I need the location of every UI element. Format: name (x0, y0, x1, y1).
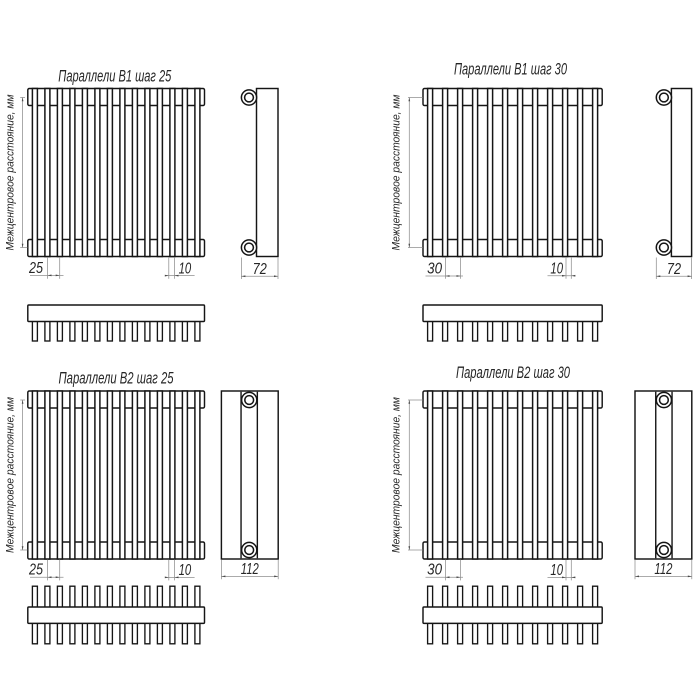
svg-text:Межцентровое расстояние, мм: Межцентровое расстояние, мм (391, 94, 403, 251)
svg-text:72: 72 (667, 261, 681, 278)
svg-text:10: 10 (550, 260, 563, 277)
svg-text:Параллели В1 шаг 30: Параллели В1 шаг 30 (454, 60, 567, 78)
svg-text:10: 10 (179, 562, 192, 579)
svg-text:30: 30 (427, 562, 442, 579)
svg-text:Межцентровое расстояние, мм: Межцентровое расстояние, мм (5, 94, 17, 251)
svg-text:112: 112 (654, 561, 672, 578)
svg-text:Параллели В2 шаг 25: Параллели В2 шаг 25 (59, 370, 175, 388)
svg-text:25: 25 (28, 260, 43, 277)
svg-text:30: 30 (427, 261, 442, 278)
svg-text:Межцентровое расстояние, мм: Межцентровое расстояние, мм (391, 396, 403, 553)
svg-text:25: 25 (28, 562, 43, 579)
svg-text:10: 10 (179, 260, 192, 277)
svg-text:Параллели В1 шаг 25: Параллели В1 шаг 25 (58, 68, 172, 86)
svg-text:10: 10 (550, 562, 563, 579)
svg-text:Параллели В2 шаг 30: Параллели В2 шаг 30 (456, 364, 570, 382)
svg-text:72: 72 (253, 261, 267, 278)
svg-text:Межцентровое расстояние, мм: Межцентровое расстояние, мм (5, 396, 17, 553)
svg-text:112: 112 (241, 561, 259, 578)
